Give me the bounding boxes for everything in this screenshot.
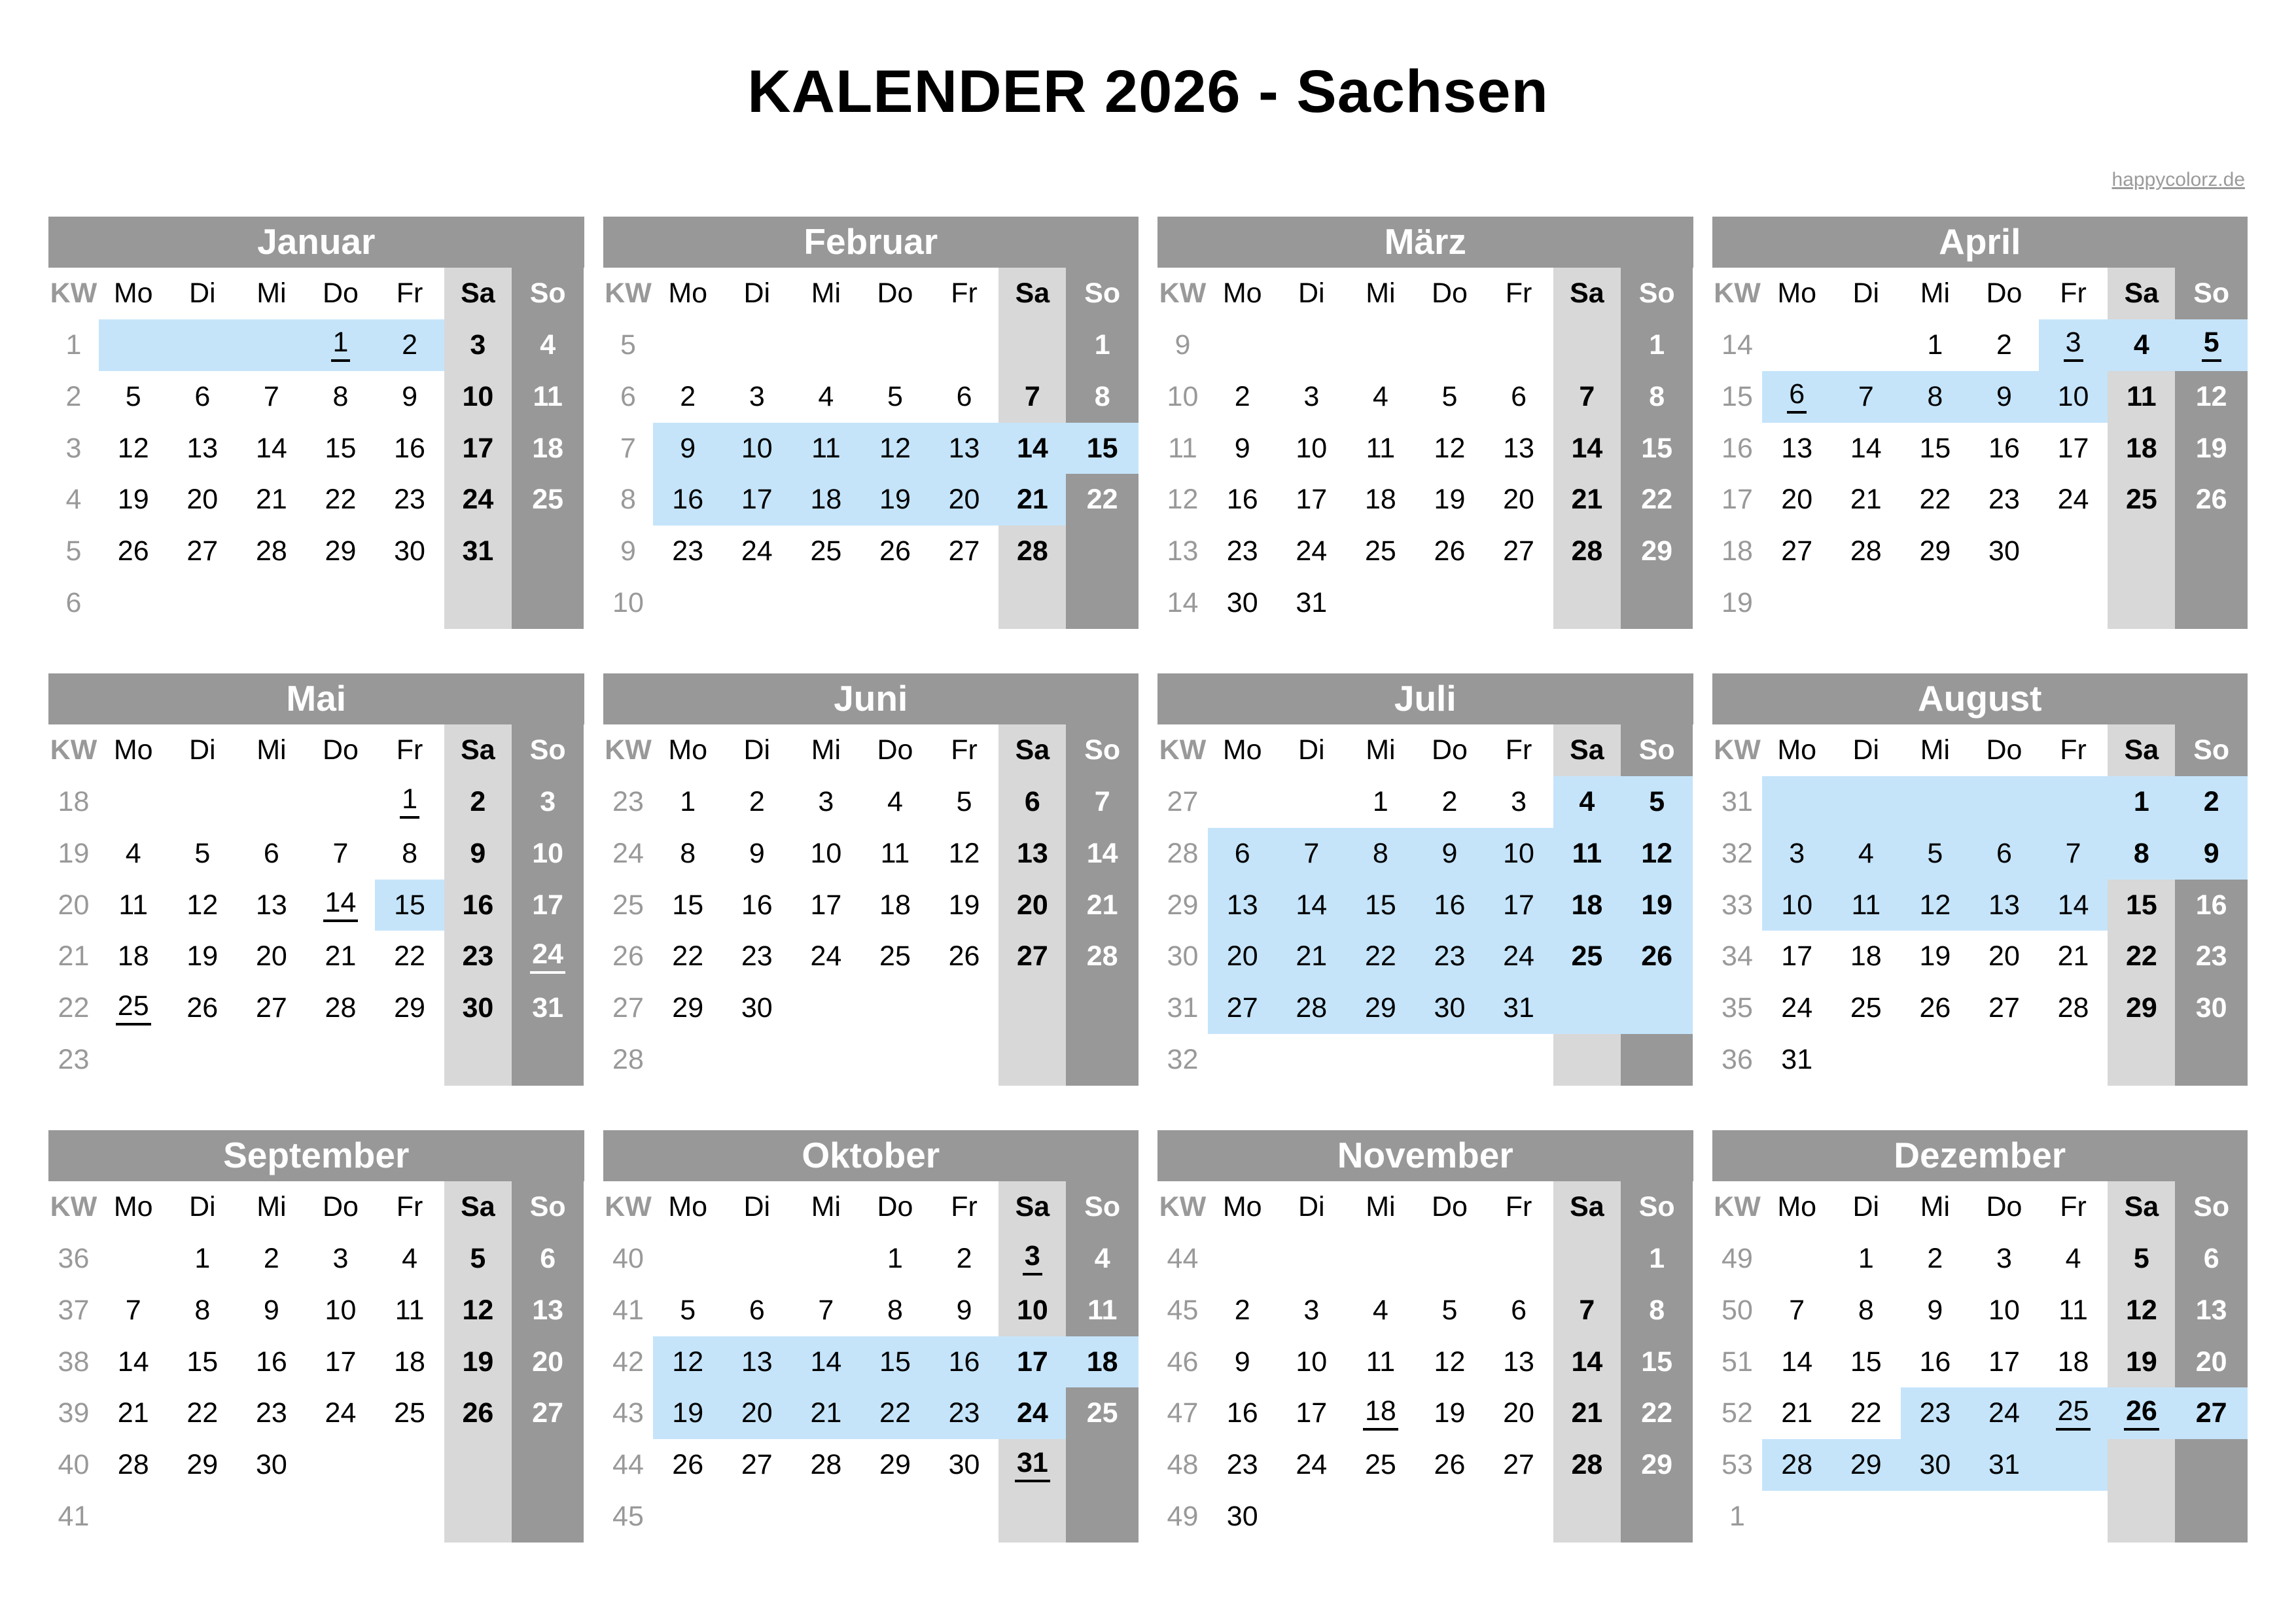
day-cell: 23 xyxy=(1901,1387,1970,1439)
weekday-header-cell-mi: Mi xyxy=(1346,1181,1415,1233)
weekday-header-cell-di: Di xyxy=(1277,724,1347,776)
kw-cell: 23 xyxy=(48,1034,99,1086)
week-row: 4823242526272829 xyxy=(1157,1439,1693,1491)
week-row: 469101112131415 xyxy=(1157,1336,1693,1388)
day-cell: 27 xyxy=(930,526,999,577)
day-cell xyxy=(168,577,238,629)
kw-cell: 30 xyxy=(1157,931,1208,982)
day-cell: 13 xyxy=(2175,1285,2247,1336)
day-cell xyxy=(998,577,1066,629)
kw-cell: 2 xyxy=(48,371,99,423)
kw-cell: 47 xyxy=(1157,1387,1208,1439)
week-row: 28 xyxy=(603,1034,1139,1086)
weekday-header-cell-fr: Fr xyxy=(2039,268,2108,319)
day-cell: 6 xyxy=(1762,371,1831,423)
day-cell xyxy=(2039,776,2108,828)
kw-cell: 5 xyxy=(48,526,99,577)
weekday-header-cell-fr: Fr xyxy=(375,724,444,776)
day-cell: 16 xyxy=(237,1336,306,1388)
weekday-header-row: KWMoDiMiDoFrSaSo xyxy=(1157,724,1693,776)
day-cell: 24 xyxy=(1484,931,1553,982)
day-cell xyxy=(2039,577,2108,629)
day-cell: 18 xyxy=(2108,423,2175,474)
day-cell xyxy=(1066,1439,1138,1491)
kw-cell: 36 xyxy=(1712,1034,1763,1086)
kw-cell: 31 xyxy=(1157,982,1208,1034)
day-cell: 21 xyxy=(2039,931,2108,982)
day-cell xyxy=(998,1034,1066,1086)
day-cell: 19 xyxy=(1621,880,1693,931)
kw-cell: 11 xyxy=(1157,423,1208,474)
month-block-januar: JanuarKWMoDiMiDoFrSaSo112342567891011312… xyxy=(48,217,584,629)
month-grid: KWMoDiMiDoFrSaSo311232345678933101112131… xyxy=(1712,724,2248,1086)
kw-cell: 18 xyxy=(1712,526,1763,577)
day-cell: 15 xyxy=(1901,423,1970,474)
weekday-header-cell-fr: Fr xyxy=(375,268,444,319)
kw-cell: 40 xyxy=(48,1439,99,1491)
day-cell: 28 xyxy=(1553,526,1621,577)
week-row: 4716171819202122 xyxy=(1157,1387,1693,1439)
day-cell xyxy=(1553,319,1621,371)
day-cell: 25 xyxy=(1346,1439,1415,1491)
day-cell: 8 xyxy=(1621,371,1693,423)
month-grid: KWMoDiMiDoFrSaSo141234515678910111216131… xyxy=(1712,268,2248,629)
day-cell: 23 xyxy=(930,1387,999,1439)
day-cell xyxy=(1415,319,1485,371)
day-cell: 4 xyxy=(860,776,930,828)
week-row: 5078910111213 xyxy=(1712,1285,2248,1336)
day-cell xyxy=(99,1233,168,1285)
day-cell: 24 xyxy=(1277,1439,1347,1491)
weekday-header-cell-sa: Sa xyxy=(1553,724,1621,776)
kw-cell: 33 xyxy=(1712,880,1763,931)
month-grid: KWMoDiMiDoFrSaSo112342567891011312131415… xyxy=(48,268,584,629)
week-row: 44262728293031 xyxy=(603,1439,1139,1491)
weekday-header-cell-fr: Fr xyxy=(1484,724,1553,776)
day-cell: 26 xyxy=(1415,526,1485,577)
day-cell: 4 xyxy=(375,1233,444,1285)
day-cell: 17 xyxy=(998,1336,1066,1388)
day-cell: 7 xyxy=(306,828,376,880)
kw-cell: 51 xyxy=(1712,1336,1763,1388)
day-cell xyxy=(237,776,306,828)
day-cell: 3 xyxy=(792,776,861,828)
day-cell: 28 xyxy=(237,526,306,577)
day-cell: 2 xyxy=(237,1233,306,1285)
day-cell: 11 xyxy=(2108,371,2175,423)
kw-cell: 9 xyxy=(1157,319,1208,371)
day-cell: 11 xyxy=(1346,1336,1415,1388)
day-cell xyxy=(306,1491,376,1543)
week-row: 119101112131415 xyxy=(1157,423,1693,474)
day-cell: 20 xyxy=(1484,1387,1553,1439)
day-cell xyxy=(237,1034,306,1086)
weekday-header-cell-fr: Fr xyxy=(1484,1181,1553,1233)
day-cell: 14 xyxy=(306,880,376,931)
day-cell: 19 xyxy=(99,474,168,526)
day-cell: 2 xyxy=(1901,1233,1970,1285)
week-row: 51 xyxy=(603,319,1139,371)
day-cell: 18 xyxy=(2039,1336,2108,1388)
day-cell: 14 xyxy=(237,423,306,474)
day-cell: 20 xyxy=(930,474,999,526)
day-cell: 19 xyxy=(1415,1387,1485,1439)
day-cell: 25 xyxy=(1831,982,1901,1034)
day-cell: 14 xyxy=(1762,1336,1831,1388)
day-cell: 21 xyxy=(1553,474,1621,526)
day-cell xyxy=(1484,1491,1553,1543)
week-row: 2567891011 xyxy=(48,371,584,423)
site-link[interactable]: happycolorz.de xyxy=(2112,169,2245,191)
day-cell xyxy=(1762,319,1831,371)
day-cell: 21 xyxy=(306,931,376,982)
day-cell: 26 xyxy=(2175,474,2247,526)
weekday-header-cell-di: Di xyxy=(722,268,792,319)
day-cell: 19 xyxy=(1415,474,1485,526)
kw-cell: 15 xyxy=(1712,371,1763,423)
weekday-header-cell-sa: Sa xyxy=(444,268,512,319)
day-cell xyxy=(1484,1233,1553,1285)
day-cell: 9 xyxy=(2175,828,2247,880)
day-cell: 10 xyxy=(306,1285,376,1336)
day-cell: 30 xyxy=(1415,982,1485,1034)
weekday-header-cell-di: Di xyxy=(168,1181,238,1233)
month-block-marz: MärzKWMoDiMiDoFrSaSo91102345678119101112… xyxy=(1157,217,1693,629)
day-cell xyxy=(653,1491,722,1543)
day-cell: 25 xyxy=(792,526,861,577)
day-cell xyxy=(444,1491,512,1543)
day-cell: 4 xyxy=(2108,319,2175,371)
day-cell: 26 xyxy=(860,526,930,577)
day-cell: 15 xyxy=(375,880,444,931)
day-cell: 15 xyxy=(306,423,376,474)
day-cell: 25 xyxy=(1553,931,1621,982)
day-cell xyxy=(1346,577,1415,629)
weekday-header-cell-so: So xyxy=(1621,1181,1693,1233)
day-cell: 16 xyxy=(2175,880,2247,931)
weekday-header-cell-sa: Sa xyxy=(2108,1181,2175,1233)
weekday-header-cell-mo: Mo xyxy=(99,1181,168,1233)
kw-cell: 18 xyxy=(48,776,99,828)
kw-cell: 14 xyxy=(1157,577,1208,629)
weekday-header-cell-sa: Sa xyxy=(444,724,512,776)
day-cell: 8 xyxy=(1831,1285,1901,1336)
day-cell: 23 xyxy=(2175,931,2247,982)
day-cell: 14 xyxy=(2039,880,2108,931)
day-cell: 25 xyxy=(2039,1387,2108,1439)
day-cell: 3 xyxy=(1277,1285,1347,1336)
day-cell xyxy=(792,319,861,371)
day-cell xyxy=(99,577,168,629)
day-cell xyxy=(1831,1491,1901,1543)
day-cell: 27 xyxy=(237,982,306,1034)
day-cell xyxy=(375,1034,444,1086)
day-cell: 15 xyxy=(168,1336,238,1388)
weekday-header-cell-so: So xyxy=(2175,724,2247,776)
day-cell: 27 xyxy=(1484,1439,1553,1491)
day-cell: 6 xyxy=(1208,828,1277,880)
day-cell: 24 xyxy=(2039,474,2108,526)
day-cell: 8 xyxy=(653,828,722,880)
week-row: 2515161718192021 xyxy=(603,880,1139,931)
holiday-underline: 5 xyxy=(2202,328,2221,362)
weekday-header-cell-kw: KW xyxy=(603,268,654,319)
kw-cell: 24 xyxy=(603,828,654,880)
day-cell xyxy=(2108,1439,2175,1491)
day-cell: 19 xyxy=(1901,931,1970,982)
weekday-header-cell-sa: Sa xyxy=(1553,268,1621,319)
day-cell xyxy=(722,577,792,629)
day-cell: 3 xyxy=(998,1233,1066,1285)
day-cell: 8 xyxy=(1621,1285,1693,1336)
weekday-header-cell-kw: KW xyxy=(1157,724,1208,776)
day-cell: 23 xyxy=(1415,931,1485,982)
day-cell: 13 xyxy=(722,1336,792,1388)
month-title: Juni xyxy=(603,673,1139,724)
week-row: 401234 xyxy=(603,1233,1139,1285)
week-row: 3417181920212223 xyxy=(1712,931,2248,982)
day-cell: 11 xyxy=(99,880,168,931)
kw-cell: 39 xyxy=(48,1387,99,1439)
day-cell xyxy=(99,319,168,371)
day-cell: 3 xyxy=(2039,319,2108,371)
day-cell: 21 xyxy=(998,474,1066,526)
day-cell: 25 xyxy=(860,931,930,982)
weekday-header-cell-di: Di xyxy=(1277,1181,1347,1233)
day-cell: 18 xyxy=(375,1336,444,1388)
day-cell: 17 xyxy=(2039,423,2108,474)
weekday-header-cell-di: Di xyxy=(722,1181,792,1233)
day-cell: 11 xyxy=(1831,880,1901,931)
week-row: 6 xyxy=(48,577,584,629)
weekday-header-cell-do: Do xyxy=(1415,1181,1485,1233)
weekday-header-cell-so: So xyxy=(1621,268,1693,319)
kw-cell: 14 xyxy=(1712,319,1763,371)
day-cell: 24 xyxy=(1277,526,1347,577)
day-cell: 22 xyxy=(1621,1387,1693,1439)
day-cell xyxy=(792,982,861,1034)
day-cell xyxy=(512,526,584,577)
week-row: 10 xyxy=(603,577,1139,629)
day-cell: 25 xyxy=(512,474,584,526)
weekday-header-cell-mi: Mi xyxy=(1901,268,1970,319)
weekday-header-cell-mi: Mi xyxy=(1346,268,1415,319)
day-cell: 3 xyxy=(722,371,792,423)
day-cell xyxy=(1901,1034,1970,1086)
day-cell: 2 xyxy=(444,776,512,828)
kw-cell: 38 xyxy=(48,1336,99,1388)
day-cell xyxy=(1831,319,1901,371)
week-row: 1 xyxy=(1712,1491,2248,1543)
day-cell xyxy=(722,1034,792,1086)
day-cell xyxy=(1277,319,1347,371)
weekday-header-cell-fr: Fr xyxy=(930,268,999,319)
day-cell: 20 xyxy=(1484,474,1553,526)
week-row: 1613141516171819 xyxy=(1712,423,2248,474)
week-row: 11234 xyxy=(48,319,584,371)
day-cell: 7 xyxy=(99,1285,168,1336)
holiday-underline: 6 xyxy=(1787,380,1807,414)
day-cell xyxy=(1346,1233,1415,1285)
day-cell: 3 xyxy=(1762,828,1831,880)
day-cell: 27 xyxy=(2175,1387,2247,1439)
day-cell: 10 xyxy=(1484,828,1553,880)
day-cell: 28 xyxy=(792,1439,861,1491)
week-row: 40282930 xyxy=(48,1439,584,1491)
weekday-header-cell-do: Do xyxy=(1415,268,1485,319)
weekday-header-cell-di: Di xyxy=(1277,268,1347,319)
day-cell: 27 xyxy=(1484,526,1553,577)
week-row: 41 xyxy=(48,1491,584,1543)
weekday-header-cell-kw: KW xyxy=(1157,1181,1208,1233)
day-cell: 9 xyxy=(1208,1336,1277,1388)
day-cell xyxy=(653,1034,722,1086)
month-block-mai: MaiKWMoDiMiDoFrSaSo181231945678910201112… xyxy=(48,673,584,1086)
day-cell xyxy=(1762,776,1831,828)
kw-cell: 32 xyxy=(1157,1034,1208,1086)
day-cell: 11 xyxy=(1066,1285,1138,1336)
week-row: 45 xyxy=(603,1491,1139,1543)
day-cell: 24 xyxy=(722,526,792,577)
month-grid: KWMoDiMiDoFrSaSo441452345678469101112131… xyxy=(1157,1181,1693,1543)
kw-cell: 10 xyxy=(1157,371,1208,423)
kw-cell: 44 xyxy=(603,1439,654,1491)
day-cell: 26 xyxy=(1415,1439,1485,1491)
weekday-header-cell-sa: Sa xyxy=(998,724,1066,776)
day-cell: 22 xyxy=(1066,474,1138,526)
day-cell xyxy=(1831,776,1901,828)
day-cell xyxy=(1066,526,1138,577)
weekday-header-cell-kw: KW xyxy=(48,268,99,319)
holiday-underline: 3 xyxy=(2064,328,2083,362)
page-title: KALENDER 2026 - Sachsen xyxy=(0,58,2296,126)
day-cell: 12 xyxy=(930,828,999,880)
weekday-header-cell-mo: Mo xyxy=(99,268,168,319)
week-row: 286789101112 xyxy=(1157,828,1693,880)
day-cell: 20 xyxy=(1762,474,1831,526)
weekday-header-cell-so: So xyxy=(512,268,584,319)
day-cell: 12 xyxy=(2175,371,2247,423)
kw-cell: 10 xyxy=(603,577,654,629)
day-cell xyxy=(2108,577,2175,629)
kw-cell: 35 xyxy=(1712,982,1763,1034)
week-row: 441 xyxy=(1157,1233,1693,1285)
weekday-header-row: KWMoDiMiDoFrSaSo xyxy=(603,724,1139,776)
day-cell: 12 xyxy=(653,1336,722,1388)
kw-cell: 22 xyxy=(48,982,99,1034)
weekday-header-cell-fr: Fr xyxy=(930,724,999,776)
day-cell xyxy=(1553,982,1621,1034)
kw-cell: 25 xyxy=(603,880,654,931)
day-cell xyxy=(306,1439,376,1491)
weekday-header-cell-mo: Mo xyxy=(653,724,722,776)
day-cell: 12 xyxy=(168,880,238,931)
kw-cell: 7 xyxy=(603,423,654,474)
kw-cell: 52 xyxy=(1712,1387,1763,1439)
day-cell: 24 xyxy=(998,1387,1066,1439)
day-cell: 20 xyxy=(1208,931,1277,982)
month-block-juni: JuniKWMoDiMiDoFrSaSo23123456724891011121… xyxy=(603,673,1139,1086)
week-row: 5114151617181920 xyxy=(1712,1336,2248,1388)
week-row: 5328293031 xyxy=(1712,1439,2248,1491)
kw-cell: 28 xyxy=(603,1034,654,1086)
day-cell: 28 xyxy=(1762,1439,1831,1491)
weekday-header-cell-mo: Mo xyxy=(1762,268,1831,319)
month-block-dezember: DezemberKWMoDiMiDoFrSaSo4912345650789101… xyxy=(1712,1130,2248,1543)
day-cell xyxy=(1346,319,1415,371)
day-cell: 17 xyxy=(792,880,861,931)
day-cell xyxy=(1415,577,1485,629)
day-cell: 27 xyxy=(1969,982,2039,1034)
day-cell xyxy=(860,319,930,371)
day-cell: 14 xyxy=(1066,828,1138,880)
day-cell: 18 xyxy=(1553,880,1621,931)
day-cell xyxy=(375,577,444,629)
day-cell xyxy=(1553,1491,1621,1543)
day-cell xyxy=(792,1491,861,1543)
day-cell: 25 xyxy=(1066,1387,1138,1439)
month-grid: KWMoDiMiDoFrSaSo271234528678910111229131… xyxy=(1157,724,1693,1086)
day-cell: 22 xyxy=(2108,931,2175,982)
day-cell: 5 xyxy=(930,776,999,828)
day-cell: 9 xyxy=(237,1285,306,1336)
week-row: 816171819202122 xyxy=(603,474,1139,526)
day-cell xyxy=(860,982,930,1034)
day-cell: 10 xyxy=(1969,1285,2039,1336)
day-cell xyxy=(1277,1233,1347,1285)
day-cell: 22 xyxy=(1621,474,1693,526)
weekday-header-cell-do: Do xyxy=(306,268,376,319)
kw-cell: 5 xyxy=(603,319,654,371)
weekday-header-cell-mi: Mi xyxy=(1901,1181,1970,1233)
week-row: 272930 xyxy=(603,982,1139,1034)
day-cell: 17 xyxy=(306,1336,376,1388)
day-cell: 29 xyxy=(653,982,722,1034)
day-cell xyxy=(1969,577,2039,629)
week-row: 5221222324252627 xyxy=(1712,1387,2248,1439)
week-row: 4212131415161718 xyxy=(603,1336,1139,1388)
day-cell: 19 xyxy=(2108,1336,2175,1388)
week-row: 143031 xyxy=(1157,577,1693,629)
day-cell: 31 xyxy=(1762,1034,1831,1086)
day-cell: 28 xyxy=(99,1439,168,1491)
kw-cell: 50 xyxy=(1712,1285,1763,1336)
day-cell: 13 xyxy=(1484,1336,1553,1388)
day-cell xyxy=(1277,1034,1347,1086)
day-cell: 5 xyxy=(1621,776,1693,828)
day-cell: 17 xyxy=(1484,880,1553,931)
month-block-februar: FebruarKWMoDiMiDoFrSaSo51623456787910111… xyxy=(603,217,1139,629)
day-cell: 4 xyxy=(1553,776,1621,828)
day-cell: 24 xyxy=(1762,982,1831,1034)
day-cell xyxy=(930,1034,999,1086)
day-cell: 5 xyxy=(1415,371,1485,423)
month-block-november: NovemberKWMoDiMiDoFrSaSo4414523456784691… xyxy=(1157,1130,1693,1543)
day-cell: 1 xyxy=(653,776,722,828)
day-cell: 6 xyxy=(722,1285,792,1336)
day-cell: 10 xyxy=(2039,371,2108,423)
day-cell: 9 xyxy=(375,371,444,423)
day-cell: 31 xyxy=(1969,1439,2039,1491)
day-cell: 13 xyxy=(237,880,306,931)
month-grid: KWMoDiMiDoFrSaSo361234563778910111213381… xyxy=(48,1181,584,1543)
day-cell: 30 xyxy=(1969,526,2039,577)
day-cell: 21 xyxy=(1553,1387,1621,1439)
day-cell: 15 xyxy=(2108,880,2175,931)
day-cell: 14 xyxy=(1277,880,1347,931)
weekday-header-row: KWMoDiMiDoFrSaSo xyxy=(1712,1181,2248,1233)
kw-cell: 26 xyxy=(603,931,654,982)
